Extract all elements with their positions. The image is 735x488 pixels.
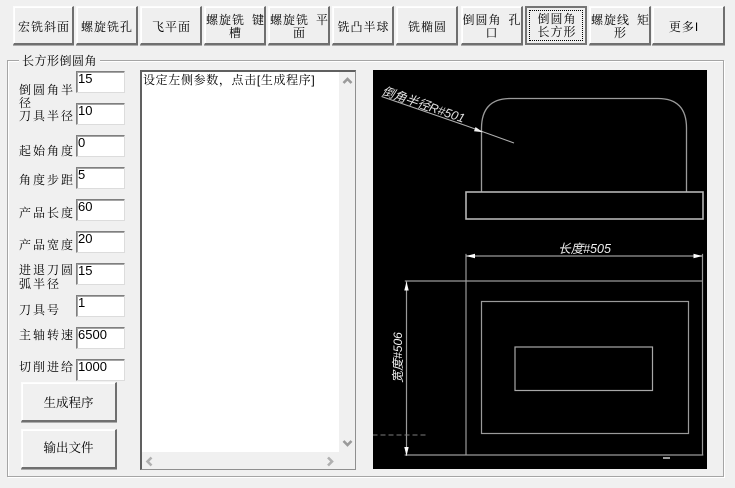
svg-text:倒角半径R#501: 倒角半径R#501 bbox=[380, 84, 467, 126]
svg-text:宽度#506: 宽度#506 bbox=[391, 331, 405, 382]
svg-text:长度#505: 长度#505 bbox=[558, 242, 611, 256]
